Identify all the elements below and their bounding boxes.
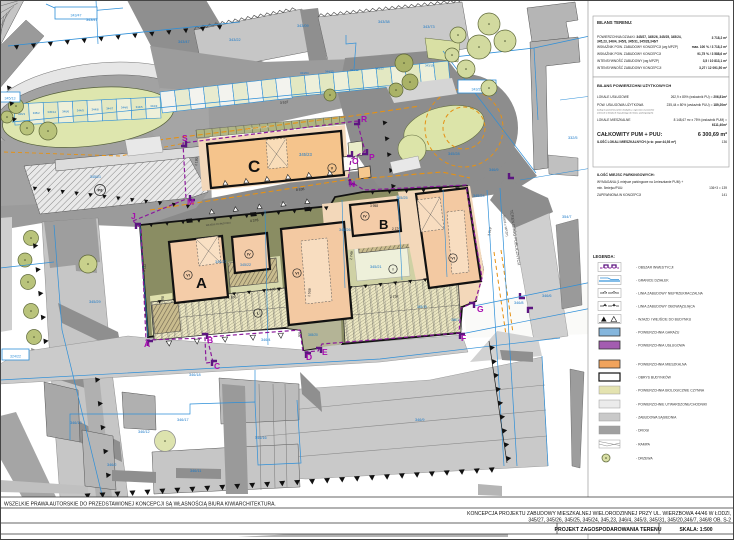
svg-text:- LINIA ZABUDOWY OBOWIĄZUJĄCA: - LINIA ZABUDOWY OBOWIĄZUJĄCA (636, 304, 696, 308)
svg-text:332/5: 332/5 (568, 136, 578, 140)
svg-text:INTENSYWNOŚĆ ZABUDOWY (wg MPZP: INTENSYWNOŚĆ ZABUDOWY (wg MPZP) (597, 58, 659, 63)
svg-text:P8: P8 (98, 187, 104, 192)
svg-text:6111,40m²: 6111,40m² (712, 123, 727, 127)
svg-text:343/22: 343/22 (229, 38, 241, 42)
svg-text:A: A (196, 275, 207, 292)
svg-text:344/04: 344/04 (300, 71, 309, 75)
svg-text:343/38: 343/38 (378, 20, 390, 24)
svg-text:WSKAŹNIK POW. ZABUDOWY KONCEPC: WSKAŹNIK POW. ZABUDOWY KONCEPCJI (wg MPZ… (597, 44, 678, 49)
svg-text:345/21: 345/21 (90, 175, 101, 179)
svg-text:- RAMPA: - RAMPA (636, 442, 651, 446)
svg-text:C: C (214, 361, 220, 371)
svg-text:346/8: 346/8 (514, 301, 524, 305)
svg-text:- DROGI: - DROGI (636, 428, 649, 432)
svg-text:POW. USŁUGOWA UŻYTKOWA: POW. USŁUGOWA UŻYTKOWA (597, 102, 644, 107)
svg-text:346/2: 346/2 (107, 463, 117, 467)
svg-text:343/47: 343/47 (86, 18, 98, 22)
svg-text:O: O (352, 156, 359, 166)
svg-text:344/5: 344/5 (136, 105, 143, 109)
svg-text:346/6: 346/6 (542, 294, 552, 298)
svg-text:ILOŚĆ MIEJSC PARKINGOWYCH:: ILOŚĆ MIEJSC PARKINGOWYCH: (597, 172, 655, 177)
svg-text:WSZELKIE PRAWA AUTORSKIE DO PR: WSZELKIE PRAWA AUTORSKIE DO PRZEDSTAWION… (4, 500, 276, 508)
svg-text:D: D (306, 352, 312, 362)
svg-text:P: P (369, 152, 375, 162)
svg-text:- GRANICE DZIAŁEK: - GRANICE DZIAŁEK (636, 278, 669, 282)
svg-text:343/47: 343/47 (178, 40, 190, 44)
svg-text:345/22: 345/22 (240, 263, 251, 267)
svg-text:344/12: 344/12 (350, 68, 359, 72)
svg-text:POWIERZCHNIA DZIAŁKI: 345/27,: POWIERZCHNIA DZIAŁKI: 345/27, 345/26, 34… (597, 35, 682, 39)
svg-text:345/27: 345/27 (215, 260, 227, 264)
svg-text:- POWIERZCHNIA GARAŻU: - POWIERZCHNIA GARAŻU (636, 329, 680, 334)
svg-text:ZAPEWNIONA W KONCEPCJI: ZAPEWNIONA W KONCEPCJI (597, 193, 641, 197)
svg-text:345/24: 345/24 (473, 194, 485, 198)
svg-text:WSKAŹNIK POW. ZABUDOWY KONCEPC: WSKAŹNIK POW. ZABUDOWY KONCEPCJI (597, 51, 661, 56)
svg-text:F: F (461, 333, 466, 343)
svg-text:346/11: 346/11 (190, 469, 201, 473)
svg-text:345,23, 346/4, 345/3, 345/31,: 345,23, 346/4, 345/3, 345/31, 345/28,346… (597, 40, 658, 44)
svg-text:R: R (361, 114, 367, 124)
svg-text:LOKALE MIESZKALNE: LOKALE MIESZKALNE (597, 118, 630, 122)
svg-text:346/4: 346/4 (261, 338, 271, 342)
svg-text:344/6: 344/6 (121, 106, 128, 110)
svg-text:345/23: 345/23 (375, 67, 384, 71)
svg-text:J: J (131, 211, 136, 221)
svg-text:344/3: 344/3 (150, 104, 157, 108)
svg-text:LOKALE USŁUGOWE: LOKALE USŁUGOWE (597, 95, 629, 99)
svg-text:346/9: 346/9 (415, 418, 425, 422)
svg-text:- LINIA ZABUDOWY NIEPRZEKRACZA: - LINIA ZABUDOWY NIEPRZEKRACZALNA (636, 291, 704, 295)
svg-text:M: M (187, 197, 194, 207)
svg-text:- POWIERZCHNIE UTWARDZONE/CHOD: - POWIERZCHNIE UTWARDZONE/CHODNIKI (636, 402, 707, 406)
svg-text:346/9: 346/9 (489, 168, 499, 172)
svg-text:3 958: 3 958 (370, 204, 378, 208)
svg-text:345/25: 345/25 (396, 196, 408, 200)
svg-text:VI: VI (295, 271, 298, 275)
svg-text:N: N (349, 179, 355, 189)
svg-text:324/22: 324/22 (10, 354, 21, 358)
svg-text:(usługi w poziomie parteru bud: (usługi w poziomie parteru budynku, częś… (597, 109, 655, 112)
svg-text:136: 136 (722, 140, 728, 144)
svg-text:345/2: 345/2 (33, 111, 40, 115)
svg-text:LEGENDA:: LEGENDA: (593, 254, 615, 259)
svg-text:PROJEKT ZAGOSPODAROWANIA TEREN: PROJEKT ZAGOSPODAROWANIA TERENU (554, 527, 661, 533)
svg-text:345/27, 345/26, 345/25, 345/24: 345/27, 345/26, 345/25, 345/24, 345,23, … (528, 518, 731, 524)
svg-text:max. 100 % / 3 718,2 m²: max. 100 % / 3 718,2 m² (692, 45, 727, 49)
svg-text:344/9: 344/9 (77, 108, 84, 112)
svg-text:B: B (379, 217, 388, 232)
svg-text:CAŁKOWITY PUM + PUU:: CAŁKOWITY PUM + PUU: (597, 132, 663, 138)
svg-text:346/18: 346/18 (189, 373, 201, 377)
svg-text:WYMAGANA (1 miejsce parkingowe: WYMAGANA (1 miejsce parkingowe na 1miesz… (597, 180, 683, 184)
svg-text:345/13: 345/13 (5, 96, 16, 100)
svg-text:3,5 / 10 813,1 m²: 3,5 / 10 813,1 m² (703, 59, 727, 63)
svg-text:141: 141 (722, 193, 728, 197)
svg-text:136+3 = 139: 136+3 = 139 (709, 186, 727, 190)
svg-text:343/09: 343/09 (297, 24, 309, 28)
svg-text:8 148,67 m² x 75% (wskaźnik PU: 8 148,67 m² x 75% (wskaźnik PUM) = (674, 118, 728, 122)
svg-text:3,27 / 12 091,50 m²: 3,27 / 12 091,50 m² (699, 66, 727, 70)
svg-text:- POWIERZCHNIA MIESZKALNA: - POWIERZCHNIA MIESZKALNA (636, 362, 687, 366)
svg-text:3 718,2 m²: 3 718,2 m² (712, 36, 727, 40)
svg-text:346/16: 346/16 (255, 436, 267, 440)
svg-text:B: B (207, 335, 213, 345)
svg-text:A: A (144, 339, 150, 349)
svg-text:- ZABUDOWA SĄSIEDNIA: - ZABUDOWA SĄSIEDNIA (636, 415, 677, 419)
svg-text:BILANS TERENU:: BILANS TERENU: (597, 20, 632, 25)
svg-text:343/19: 343/19 (425, 64, 434, 68)
svg-text:345/19: 345/19 (417, 305, 427, 309)
svg-text:346/17: 346/17 (177, 418, 189, 422)
svg-text:345/14: 345/14 (47, 110, 56, 114)
svg-text:- DRZEWA: - DRZEWA (636, 456, 653, 460)
svg-text:SKALA: 1:500: SKALA: 1:500 (679, 527, 712, 533)
svg-text:KONCEPCJA PROJEKTU ZABUDOWY MI: KONCEPCJA PROJEKTU ZABUDOWY MIESZKALNEJ … (467, 511, 731, 517)
svg-text:345/21: 345/21 (370, 265, 382, 269)
svg-text:G: G (477, 304, 484, 314)
svg-text:- OBSZAR INWESTYCJI: - OBSZAR INWESTYCJI (636, 265, 674, 269)
svg-text:- POWIERZCHNIA BIOLOGICZNIE CZ: - POWIERZCHNIA BIOLOGICZNIE CZYNNA (636, 388, 705, 392)
svg-text:343/73: 343/73 (423, 25, 435, 29)
svg-text:343/47: 343/47 (71, 13, 82, 17)
svg-text:IV: IV (363, 214, 367, 218)
svg-text:- WJAZD I WEJŚCIE DO BUDYNKU: - WJAZD I WEJŚCIE DO BUDYNKU (636, 316, 692, 321)
svg-text:345/29: 345/29 (89, 300, 101, 304)
svg-text:346/6: 346/6 (62, 109, 69, 113)
svg-text:S: S (182, 133, 188, 143)
svg-text:E: E (322, 347, 328, 357)
svg-text:min. 5miejsc/PUU:: min. 5miejsc/PUU: (597, 186, 623, 190)
svg-text:ILOŚĆ LOKALI MIESZKALNYCH (o ś: ILOŚĆ LOKALI MIESZKALNYCH (o śr. pow 44,… (597, 139, 676, 144)
svg-text:235,44 x 80% (wskaźnik PUU) =: 235,44 x 80% (wskaźnik PUU) = 189,20m² (667, 103, 727, 107)
svg-text:antresoli w lokalach mają dost: antresoli w lokalach mają dostęp do miej… (597, 112, 653, 115)
svg-text:354/7: 354/7 (562, 215, 572, 219)
svg-text:262,9 x 80% (wskaźnik PU) = 20: 262,9 x 80% (wskaźnik PU) = 206,81m² (671, 95, 727, 99)
svg-text:INTENSYWNOŚĆ ZABUDOWY KONCEPCJ: INTENSYWNOŚĆ ZABUDOWY KONCEPCJI (597, 65, 662, 70)
svg-text:IV: IV (247, 252, 251, 256)
svg-text:91,75 % / 3 588,6 m²: 91,75 % / 3 588,6 m² (697, 52, 727, 56)
svg-text:VI: VI (451, 256, 454, 260)
svg-text:- OBRYS BUDYNKÓW: - OBRYS BUDYNKÓW (636, 374, 672, 379)
svg-text:344/8: 344/8 (92, 108, 99, 112)
svg-text:346/13: 346/13 (70, 421, 82, 425)
svg-text:345/26: 345/26 (339, 228, 351, 232)
svg-text:346/12: 346/12 (138, 430, 150, 434)
svg-text:345/23: 345/23 (299, 152, 312, 157)
svg-text:346/1: 346/1 (451, 318, 459, 322)
svg-text:BILANS POWIERZCHNI UŻYTKOWYCH: BILANS POWIERZCHNI UŻYTKOWYCH (597, 83, 671, 88)
svg-text:345/20: 345/20 (308, 333, 318, 337)
svg-text:- POWIERZCHNIA USŁUGOWA: - POWIERZCHNIA USŁUGOWA (636, 343, 686, 347)
svg-text:345/28: 345/28 (448, 152, 460, 156)
svg-text:344/13: 344/13 (325, 70, 334, 74)
svg-text:I: I (393, 267, 394, 271)
svg-text:C: C (248, 157, 260, 176)
svg-text:6 300,69 m²: 6 300,69 m² (698, 132, 727, 138)
svg-text:344/7: 344/7 (106, 107, 113, 111)
svg-text:VI: VI (186, 273, 189, 277)
